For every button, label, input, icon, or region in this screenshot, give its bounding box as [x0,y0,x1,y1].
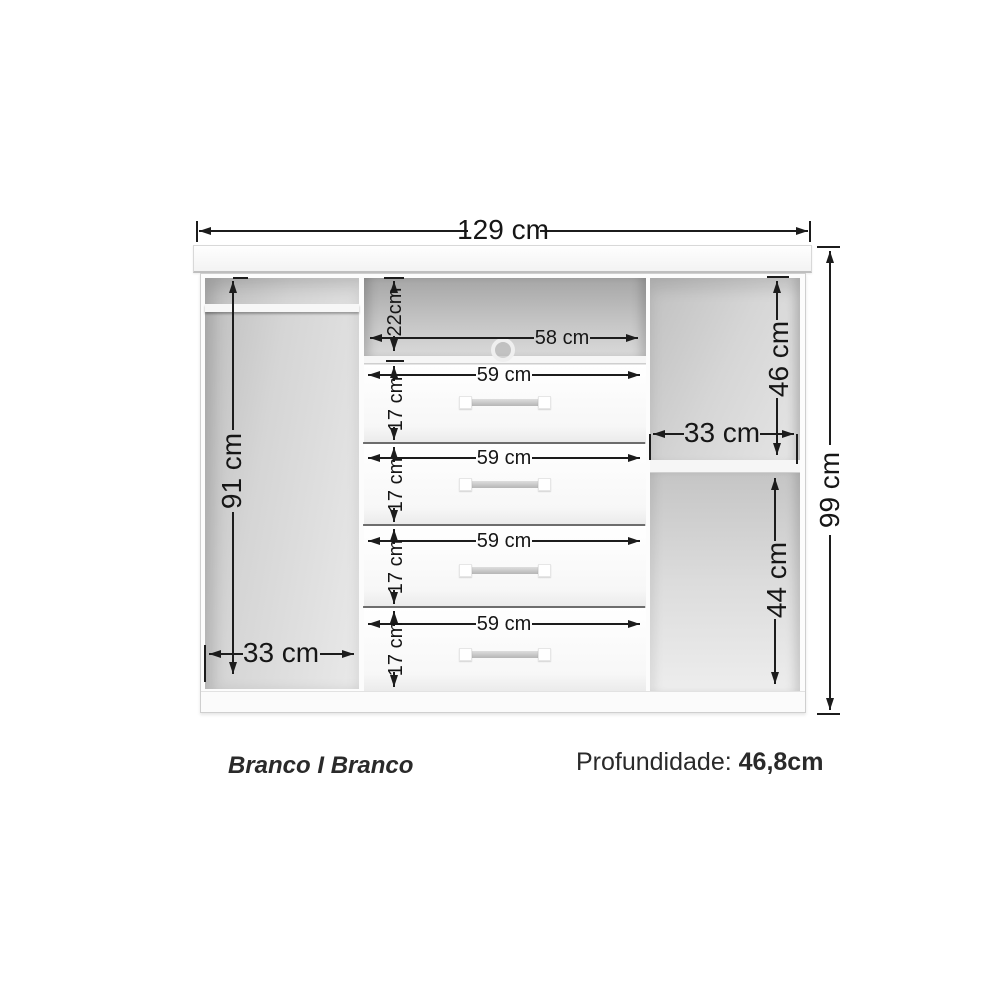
label-left-width: 33 cm [243,639,319,667]
drawer-handle [459,396,551,409]
wardrobe-top-crown [193,245,812,273]
label-drawer-width: 59 cm [477,448,531,468]
finish-color-label: Branco I Branco [228,752,413,780]
handle-cap [538,396,551,409]
depth-caption-value: 46,8cm [739,748,824,776]
handle-cap [538,478,551,491]
cable-hole [491,338,515,362]
label-right-width: 33 cm [684,419,760,447]
label-right-top-height: 46 cm [765,321,793,397]
label-drawer-height: 17 cm [386,540,406,594]
label-drawer-width: 59 cm [477,365,531,385]
handle-cap [538,564,551,577]
drawer-handle [459,478,551,491]
depth-caption-label: Profundidade: [576,748,732,776]
label-overall-width: 129 cm [457,216,549,244]
drawer-handle [459,648,551,661]
handle-bar [468,651,542,658]
handle-cap [459,396,472,409]
handle-cap [538,648,551,661]
right-shelf [650,460,800,473]
drawer-handle [459,564,551,577]
handle-cap [459,478,472,491]
label-right-bottom-height: 44 cm [763,542,791,618]
handle-bar [468,567,542,574]
label-drawer-width: 59 cm [477,531,531,551]
label-overall-height: 99 cm [816,452,844,528]
label-drawer-height: 17 cm [386,458,406,512]
label-niche-width: 58 cm [535,328,589,348]
hanging-rod [205,304,359,312]
wardrobe-dimension-diagram: 129 cm 99 cm 91 cm 33 cm 22cm 58 cm 59 c… [0,0,1000,1000]
handle-bar [468,481,542,488]
label-niche-height: 22cm [385,288,405,337]
handle-cap [459,564,472,577]
handle-cap [459,648,472,661]
handle-bar [468,399,542,406]
label-left-height: 91 cm [218,433,246,509]
label-drawer-height: 17 cm [386,622,406,676]
depth-caption: Profundidade: 46,8cm [576,748,823,777]
label-drawer-width: 59 cm [477,614,531,634]
base-plinth [201,691,805,712]
label-drawer-height: 17 cm [386,377,406,431]
